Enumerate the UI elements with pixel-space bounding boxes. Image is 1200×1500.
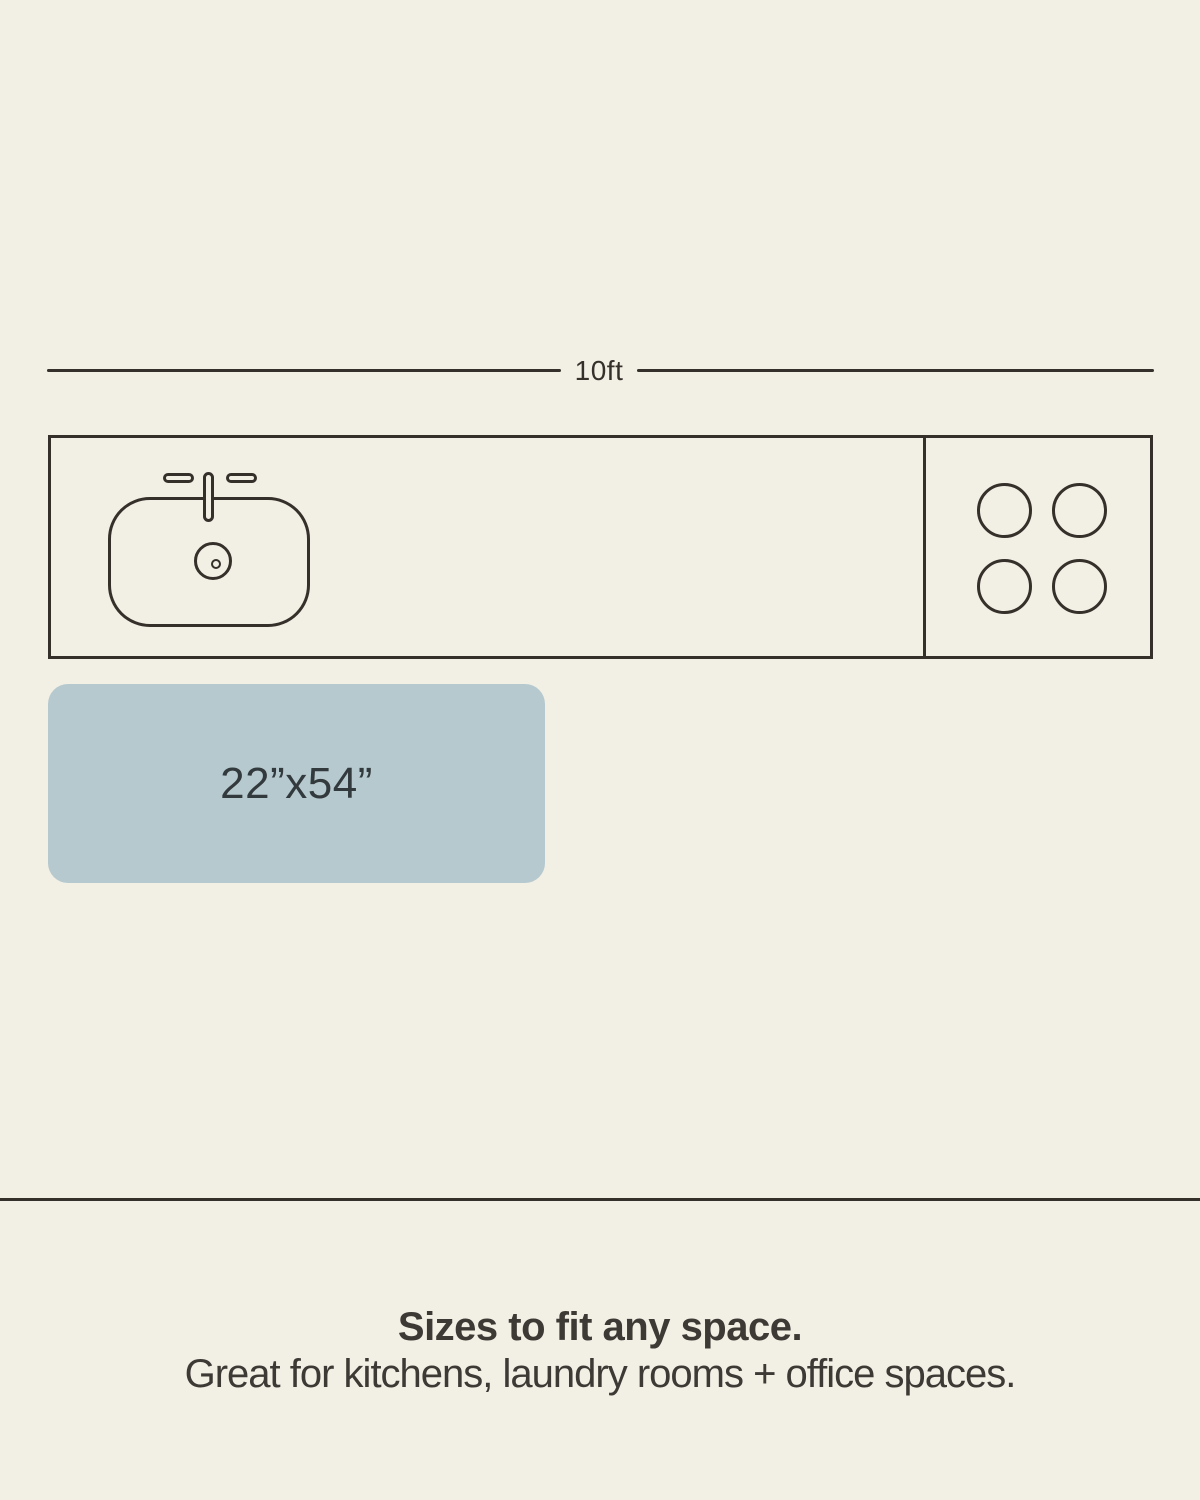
dimension-label: 10ft (549, 354, 649, 388)
footer-text: Sizes to fit any space. Great for kitche… (0, 1304, 1200, 1398)
drain-dot (211, 559, 221, 569)
mat-size-label: 22”x54” (220, 759, 373, 809)
burner-circle (977, 559, 1032, 614)
dimension-line-left-segment (47, 369, 561, 372)
countertop-outline (48, 435, 1153, 659)
burner-circle (977, 483, 1032, 538)
section-divider (0, 1198, 1200, 1201)
stove-burners-icon (926, 438, 1156, 656)
footer-subheading: Great for kitchens, laundry rooms + offi… (0, 1350, 1200, 1398)
dimension-line-right-segment (637, 369, 1154, 372)
burner-circle (1052, 559, 1107, 614)
size-diagram-page: 10ft 22”x54” Sizes to fit any space. Gre… (0, 0, 1200, 1500)
drain-icon (194, 542, 232, 580)
burner-circle (1052, 483, 1107, 538)
faucet-handle-right-icon (226, 473, 257, 483)
footer-heading: Sizes to fit any space. (0, 1304, 1200, 1350)
faucet-handle-left-icon (163, 473, 194, 483)
mat-rect: 22”x54” (48, 684, 545, 883)
faucet-spout-icon (203, 472, 214, 522)
